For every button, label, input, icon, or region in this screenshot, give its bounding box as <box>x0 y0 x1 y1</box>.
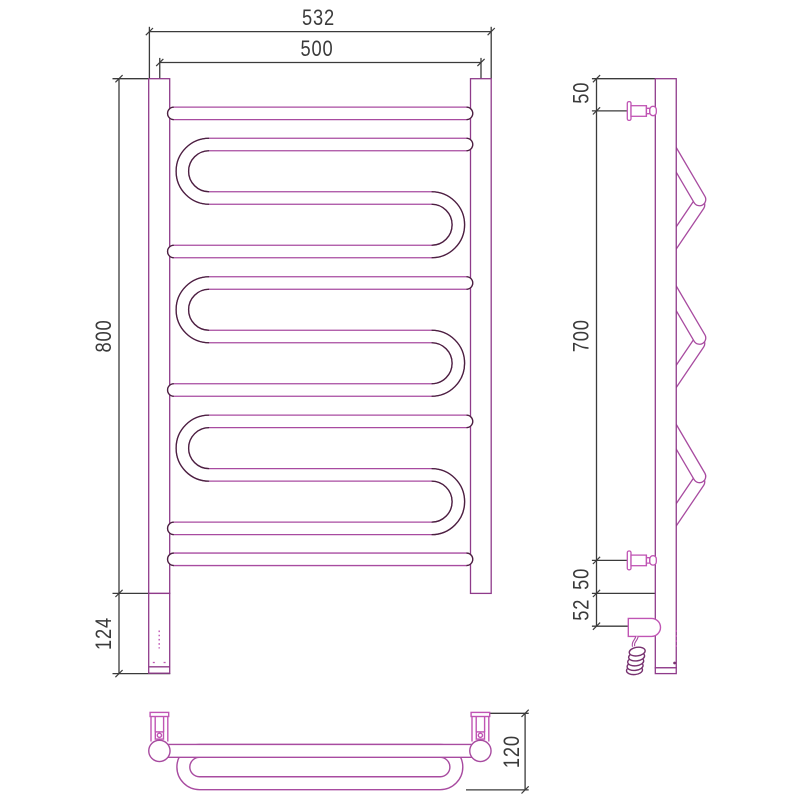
svg-text:124: 124 <box>92 617 116 650</box>
svg-text:700: 700 <box>570 319 594 352</box>
svg-text:52: 52 <box>570 599 594 621</box>
svg-text:532: 532 <box>302 6 335 30</box>
svg-text:800: 800 <box>92 320 116 353</box>
svg-text:500: 500 <box>301 37 334 61</box>
svg-text:50: 50 <box>570 82 594 104</box>
svg-text:50: 50 <box>570 568 594 590</box>
svg-text:120: 120 <box>500 735 524 768</box>
